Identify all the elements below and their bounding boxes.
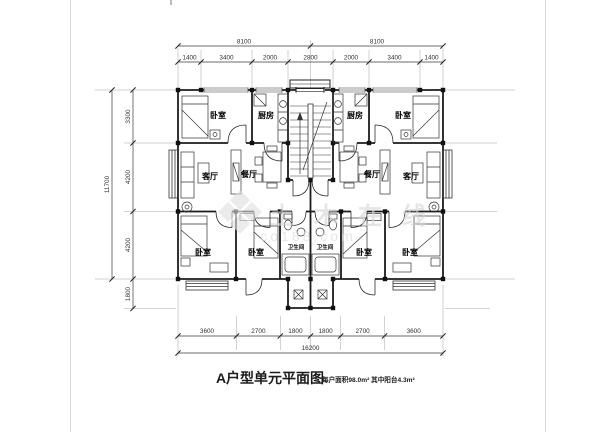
dim-top-seg-2: 2000 xyxy=(263,55,278,62)
floor-plan-svg: 8100 8100 1400 3400 2000 2800 2000 3400 … xyxy=(0,0,610,432)
watermark: 土木在线 co188.com xyxy=(218,190,446,244)
dim-left-seg-2: 4200 xyxy=(125,237,132,252)
dim-bot-seg-1: 2700 xyxy=(251,328,266,335)
dim-bot-seg-4: 2700 xyxy=(355,328,370,335)
drawing-title: A户型单元平面图 xyxy=(216,370,324,386)
room-label-kitchen-right: 厨房 xyxy=(347,110,363,120)
room-label-bedroom-top-left: 卧室 xyxy=(210,110,226,120)
dim-top-seg-5: 3400 xyxy=(387,55,402,62)
watermark-domain: co188.com xyxy=(260,228,355,244)
dim-top-seg-1: 3400 xyxy=(219,55,234,62)
room-label-bedroom-br2: 卧室 xyxy=(402,247,418,257)
dim-left-seg-3: 1800 xyxy=(125,286,132,301)
floor-plan-sheet: 8100 8100 1400 3400 2000 2800 2000 3400 … xyxy=(0,0,610,432)
dim-bot-seg-2: 1800 xyxy=(288,328,303,335)
room-label-living-left: 客厅 xyxy=(201,171,218,181)
party-wall xyxy=(308,178,312,310)
dim-top-overall-right: 8100 xyxy=(370,39,385,46)
dim-bot-seg-5: 3600 xyxy=(407,328,422,335)
room-label-bathroom-left: 卫生间 xyxy=(288,243,305,251)
room-label-dining-left: 餐厅 xyxy=(240,169,257,179)
staircase xyxy=(290,102,331,178)
drawing-subtitle: 每户面积98.0m² 其中阳台4.3m² xyxy=(322,375,416,384)
room-label-bathroom-right: 卫生间 xyxy=(317,243,334,251)
dim-top-seg-3: 2800 xyxy=(303,55,318,62)
room-label-bedroom-bl2: 卧室 xyxy=(248,247,264,257)
dim-top-seg-4: 2000 xyxy=(344,55,359,62)
room-label-bedroom-top-right: 卧室 xyxy=(395,110,411,120)
dim-top-seg-6: 1400 xyxy=(424,55,439,62)
dim-left-seg-1: 4200 xyxy=(125,169,132,184)
dim-left-overall: 11700 xyxy=(104,175,111,193)
room-label-bedroom-bl1: 卧室 xyxy=(195,247,211,257)
entry-canopy xyxy=(290,80,330,93)
dim-top-seg-0: 1400 xyxy=(182,55,197,62)
dim-bot-seg-3: 1800 xyxy=(318,328,333,335)
room-label-living-right: 客厅 xyxy=(402,171,419,181)
unit-right xyxy=(310,87,452,310)
room-label-kitchen-left: 厨房 xyxy=(258,110,274,120)
dim-left-seg-0: 3300 xyxy=(125,109,132,124)
dim-bot-seg-0: 3600 xyxy=(200,328,215,335)
dim-top-overall-left: 8100 xyxy=(237,39,252,46)
dimension-left-labels: 11700 3300 4200 4200 1800 xyxy=(104,109,132,301)
room-label-dining-right: 餐厅 xyxy=(363,169,380,179)
watermark-text: 土木在线 xyxy=(270,202,446,230)
room-label-bedroom-br1: 卧室 xyxy=(356,247,372,257)
dim-bot-overall: 16200 xyxy=(302,345,320,352)
